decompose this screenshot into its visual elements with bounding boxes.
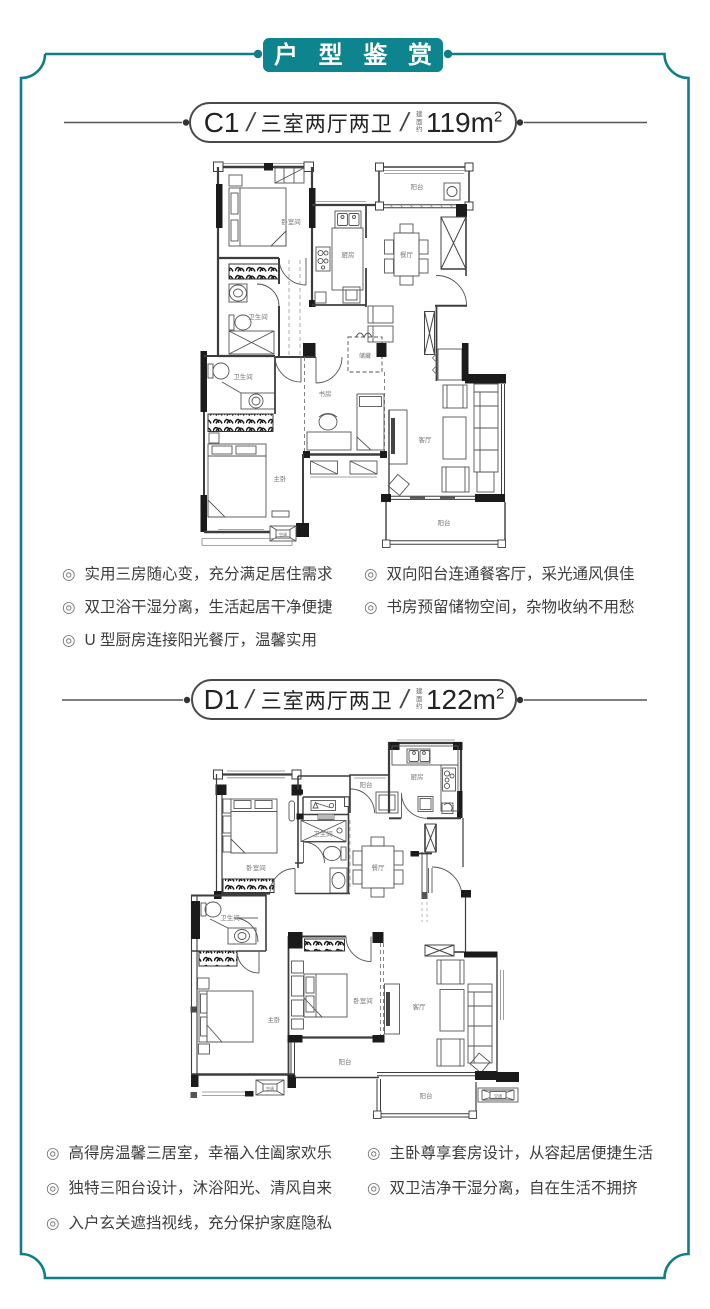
svg-text:卫生间: 卫生间 bbox=[313, 829, 333, 838]
svg-text:卧室间: 卧室间 bbox=[281, 217, 301, 226]
svg-text:卫生间: 卫生间 bbox=[233, 372, 253, 381]
svg-text:卧室间: 卧室间 bbox=[353, 996, 373, 1005]
svg-text:书房: 书房 bbox=[319, 389, 332, 398]
svg-text:空调: 空调 bbox=[494, 1093, 502, 1099]
svg-text:主卧: 主卧 bbox=[274, 474, 288, 483]
svg-text:储藏: 储藏 bbox=[359, 352, 371, 360]
svg-text:阳台: 阳台 bbox=[339, 1057, 352, 1066]
svg-text:厨房: 厨房 bbox=[411, 772, 424, 781]
svg-text:厨房: 厨房 bbox=[342, 250, 355, 259]
svg-text:阳台: 阳台 bbox=[420, 1091, 433, 1100]
svg-text:客厅: 客厅 bbox=[419, 435, 433, 444]
svg-text:空调: 空调 bbox=[279, 531, 287, 537]
svg-text:卫生间: 卫生间 bbox=[248, 312, 268, 321]
svg-text:阳台: 阳台 bbox=[360, 780, 373, 789]
svg-text:客厅: 客厅 bbox=[413, 1002, 427, 1011]
svg-text:主卧: 主卧 bbox=[268, 1015, 282, 1024]
svg-text:阳台: 阳台 bbox=[438, 518, 451, 527]
svg-text:卧室间: 卧室间 bbox=[246, 863, 266, 872]
svg-text:空调: 空调 bbox=[266, 1085, 274, 1091]
svg-text:餐厅: 餐厅 bbox=[400, 250, 414, 259]
svg-text:餐厅: 餐厅 bbox=[372, 863, 386, 872]
svg-text:阳台: 阳台 bbox=[411, 182, 424, 191]
